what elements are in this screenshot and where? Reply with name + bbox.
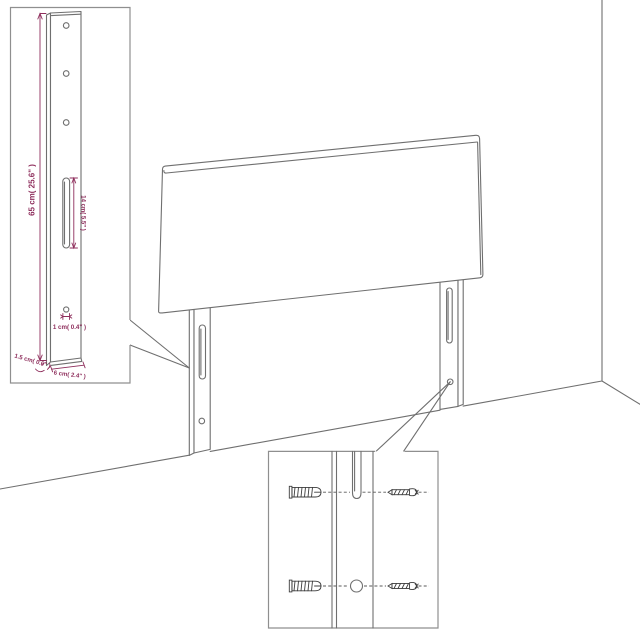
- callout-line: [404, 382, 451, 452]
- detail-leg-side-face: [47, 13, 51, 366]
- slot-length-label: 14 cm( 5.5" ): [80, 195, 86, 231]
- headboard-panel-outline: [159, 135, 483, 313]
- callout-line: [376, 382, 450, 452]
- leg-detail-inset: 65 cm( 25.6" ) 14 cm( 5.5" ) 1 cm( 0.4" …: [11, 8, 131, 384]
- assembly-diagram-svg: 65 cm( 25.6" ) 14 cm( 5.5" ) 1 cm( 0.4" …: [0, 0, 640, 640]
- left-leg-side-face: [189, 301, 194, 455]
- detail-leg-front-face: [51, 12, 82, 363]
- right-leg-side-face: [458, 274, 463, 407]
- floor-line-inner: [463, 381, 602, 406]
- floor-line-middle: [210, 410, 440, 451]
- headboard-panel: [159, 135, 483, 313]
- right-leg: [440, 274, 463, 410]
- left-leg: [189, 299, 210, 455]
- mounting-inset-background: [269, 451, 439, 628]
- callout-lines-left: [130, 320, 189, 368]
- callout-line: [130, 345, 189, 368]
- callout-lines-right: [376, 382, 450, 452]
- mounting-detail-inset: [269, 451, 439, 628]
- floor-line-right: [602, 381, 640, 404]
- floor-line-left: [0, 455, 189, 489]
- product-assembly-diagram: 65 cm( 25.6" ) 14 cm( 5.5" ) 1 cm( 0.4" …: [0, 0, 640, 640]
- left-leg-front-face: [194, 299, 210, 453]
- hole-diameter-label: 1 cm( 0.4" ): [53, 324, 86, 331]
- callout-line: [130, 320, 189, 368]
- leg-height-label: 65 cm( 25.6" ): [28, 164, 37, 216]
